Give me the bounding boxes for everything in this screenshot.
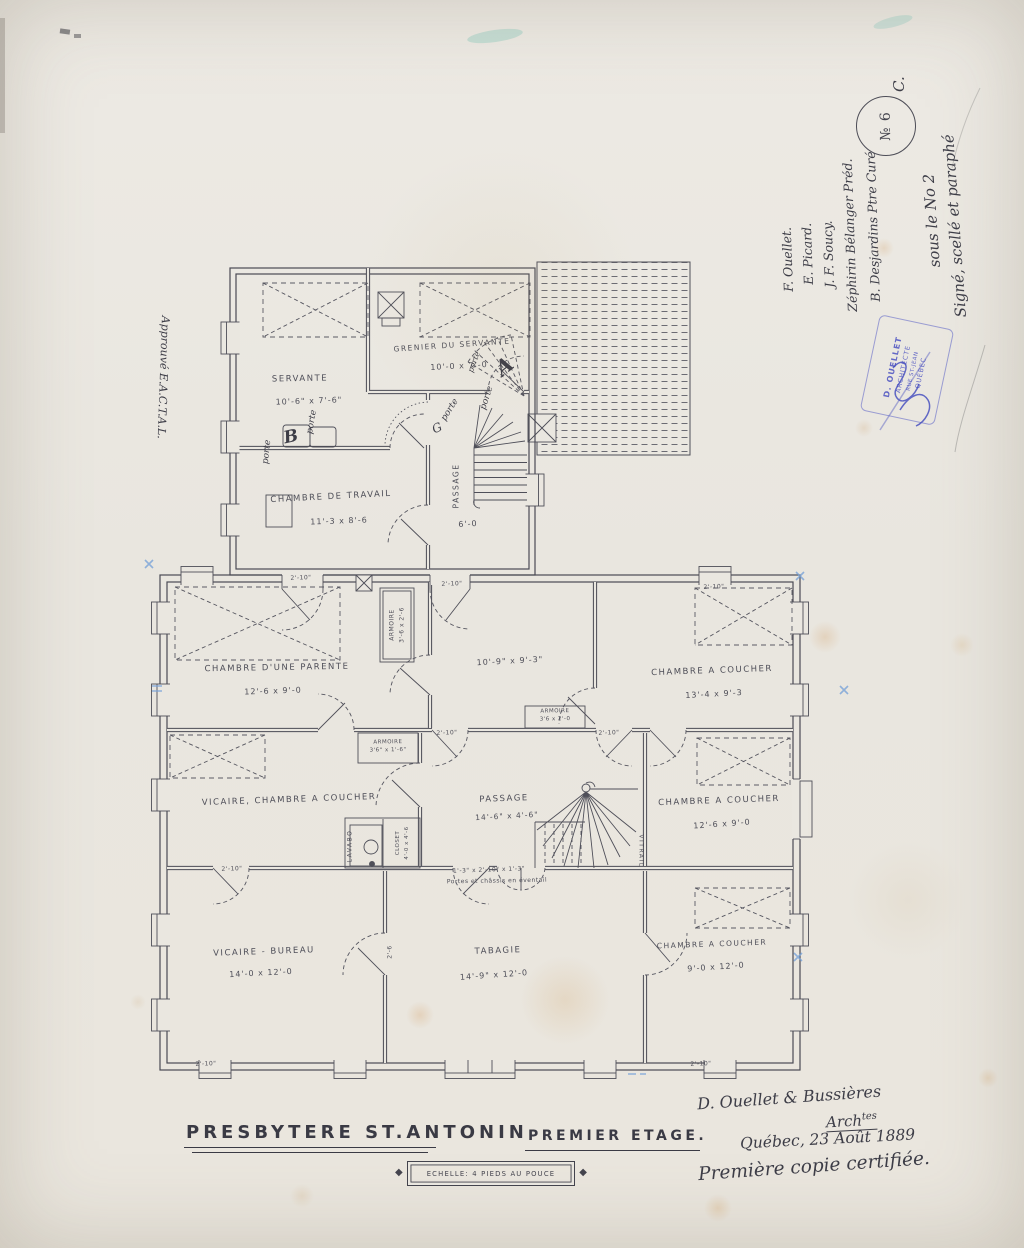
title-underline [184,1147,436,1148]
wall-dim: 2'-10" [436,729,457,737]
floor-underline [525,1150,700,1151]
registry-number: № 6 [878,111,894,141]
witness-name: E. Picard. [799,223,816,285]
room-label-tabagie: TABAGIE [474,945,521,957]
scale-label: ECHELLE: 4 PIEDS AU POUCE [427,1170,556,1178]
witness-name: J. F. Soucy. [820,220,837,288]
scan-edge-marks [0,12,914,133]
room-label-passage: PASSAGE [479,793,529,805]
drawing-title: PRESBYTERE ST.ANTONIN [186,1122,528,1143]
lavabo-basin [364,840,378,854]
wall-dim: 2'-10" [195,1060,216,1068]
teal-smudge [872,12,913,31]
wall-dim: 2'-10" [221,865,242,873]
wall-dim: 2'-10" [441,580,462,588]
cartouche-finial: ◆ [395,1167,403,1178]
stairs-spiral [535,782,638,868]
witness-name: F. Ouellet. [779,227,796,292]
triple-window [445,1060,515,1079]
wall-dim: 2'-10" [598,729,619,737]
closet-label-armoire-centre: ARMOIRE 3'6 x 2'-0 [539,708,570,724]
room-label-passage-haut: PASSAGE [452,464,461,509]
closet-label-armoire-vicaire: ARMOIRE 3'6" x 1'-6" [369,739,406,755]
registry-number-circle: № 6 [856,96,916,156]
floor-title: PREMIER ETAGE. [528,1128,707,1144]
closet-label-armoire-haut: ARMOIRE 3'-6 x 2'-6 [387,607,406,643]
room-dims-passage-haut: 6'-0 [458,519,478,529]
porch-door [792,779,812,839]
wall-dim: 2'-10" [690,1060,711,1068]
ceiling-hatch-marks [170,283,792,928]
label-vitrail: VITRAIL [638,834,645,867]
wall-dim: 2'-6 [387,945,394,958]
closet-label-closet: CLOSET 4'-0 x 4'-6 [394,826,412,859]
wall-dim: 2'-10" [703,583,724,591]
roof-hatch-area [528,262,690,455]
registry-letter: C. [890,76,908,92]
scale-cartouche: ◆ ECHELLE: 4 PIEDS AU POUCE ◆ [407,1161,575,1186]
room-label-servante: SERVANTE [272,374,328,385]
cartouche-finial: ◆ [579,1167,587,1178]
wall-dim: 2'-10" [290,574,311,582]
title-underline [192,1152,428,1153]
label-lavabo: LAVABO [347,830,354,863]
teal-smudge [466,26,523,46]
